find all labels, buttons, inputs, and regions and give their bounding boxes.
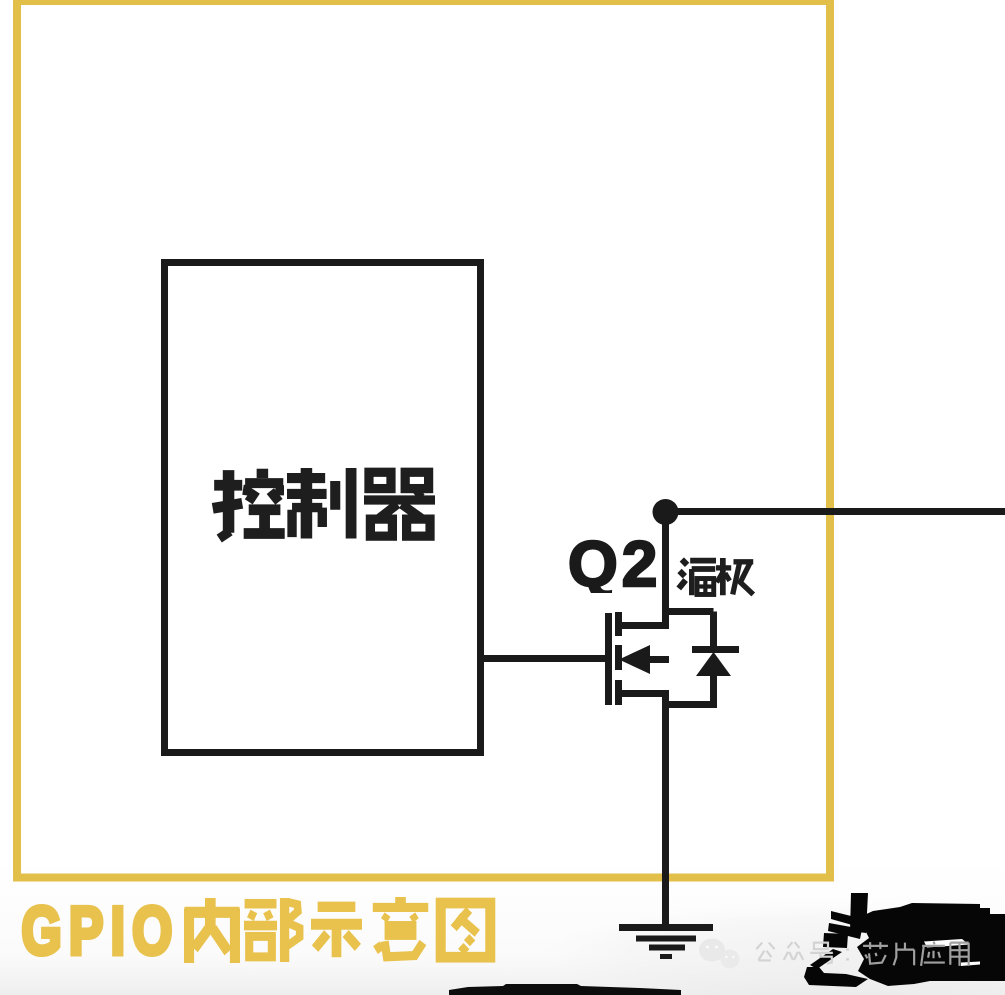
svg-text:GPIO: GPIO [22,892,180,969]
svg-text:Q2: Q2 [568,528,661,600]
